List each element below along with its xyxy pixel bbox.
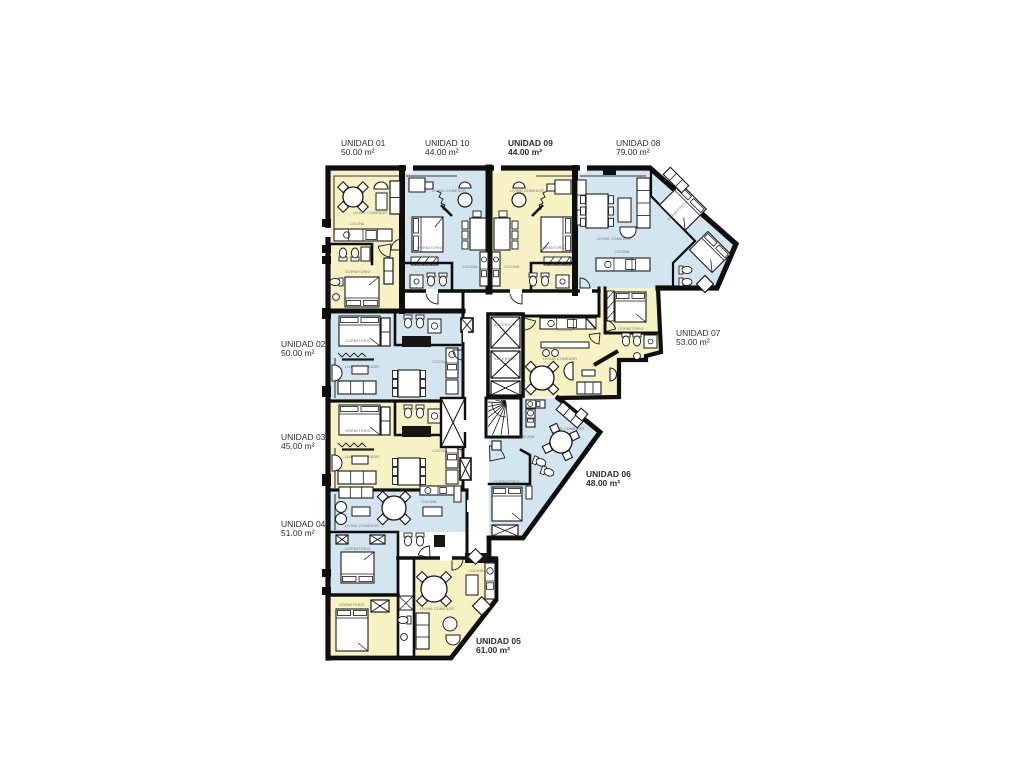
svg-text:COCINA: COCINA — [432, 449, 448, 453]
svg-text:45.00 m²: 45.00 m² — [281, 441, 315, 451]
svg-text:COCINA: COCINA — [468, 569, 484, 573]
svg-text:ASCENSOR: ASCENSOR — [494, 357, 516, 361]
svg-text:DORMITORIO: DORMITORIO — [540, 246, 565, 250]
svg-text:53.00 m²: 53.00 m² — [676, 337, 710, 347]
svg-text:DORMITORIO: DORMITORIO — [345, 429, 370, 433]
svg-text:50.00 m²: 50.00 m² — [281, 348, 315, 358]
svg-text:44.00 m²: 44.00 m² — [508, 147, 542, 157]
svg-text:COCINA: COCINA — [614, 250, 630, 254]
svg-text:DORMITORIO: DORMITORIO — [618, 327, 643, 331]
svg-text:COCINA: COCINA — [557, 328, 573, 332]
svg-text:61.00 m²: 61.00 m² — [476, 645, 510, 655]
svg-text:ASCENSOR: ASCENSOR — [494, 323, 516, 327]
svg-text:79.00 m²: 79.00 m² — [616, 147, 650, 157]
svg-text:48.00 m²: 48.00 m² — [586, 478, 620, 488]
svg-text:COCINA: COCINA — [349, 222, 365, 226]
svg-text:DORMITORIO: DORMITORIO — [417, 246, 442, 250]
svg-text:LIVING COMEDOR: LIVING COMEDOR — [345, 524, 380, 528]
svg-text:COCINA: COCINA — [432, 360, 448, 364]
svg-text:LIVING COMEDOR: LIVING COMEDOR — [353, 211, 388, 215]
svg-text:DORMITORIO: DORMITORIO — [345, 547, 370, 551]
svg-text:DORMITORIO: DORMITORIO — [494, 480, 519, 484]
svg-text:LIVING COMEDOR: LIVING COMEDOR — [510, 189, 545, 193]
svg-text:COCINA: COCINA — [462, 265, 478, 269]
svg-text:COCINA: COCINA — [421, 500, 437, 504]
svg-text:DORMITORIO: DORMITORIO — [345, 270, 370, 274]
svg-text:LIVING COMEDOR: LIVING COMEDOR — [543, 357, 578, 361]
svg-text:50.00 m²: 50.00 m² — [341, 147, 375, 157]
svg-text:44.00 m²: 44.00 m² — [425, 147, 459, 157]
svg-text:COCINA: COCINA — [504, 265, 520, 269]
svg-text:LIVING COMEDOR: LIVING COMEDOR — [420, 607, 455, 611]
svg-text:DORMITORIO: DORMITORIO — [339, 603, 364, 607]
svg-text:51.00 m²: 51.00 m² — [281, 528, 315, 538]
svg-text:COCINA: COCINA — [519, 435, 535, 439]
svg-text:DORMITORIO: DORMITORIO — [345, 339, 370, 343]
